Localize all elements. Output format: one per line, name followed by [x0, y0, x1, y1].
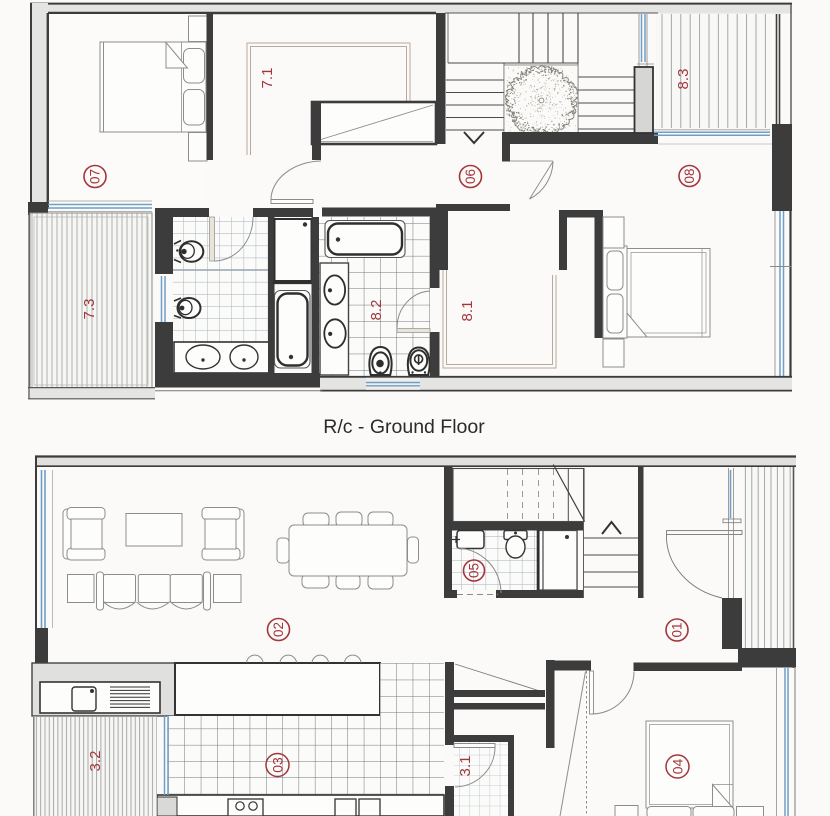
svg-text:03: 03: [270, 757, 286, 773]
svg-text:8.1: 8.1: [459, 301, 476, 322]
svg-text:05: 05: [467, 563, 482, 578]
svg-text:7.1: 7.1: [259, 68, 276, 89]
svg-text:R/c - Ground Floor: R/c - Ground Floor: [323, 416, 485, 438]
svg-text:08: 08: [682, 168, 697, 183]
svg-text:07: 07: [88, 169, 103, 184]
svg-text:8.3: 8.3: [675, 69, 692, 90]
svg-text:3.2: 3.2: [87, 751, 104, 772]
svg-text:7.3: 7.3: [81, 299, 98, 320]
svg-text:06: 06: [463, 169, 478, 184]
svg-text:02: 02: [271, 622, 286, 637]
svg-text:3.1: 3.1: [457, 756, 474, 777]
svg-text:8.2: 8.2: [368, 300, 385, 321]
svg-text:01: 01: [670, 622, 685, 637]
svg-text:04: 04: [670, 759, 686, 775]
